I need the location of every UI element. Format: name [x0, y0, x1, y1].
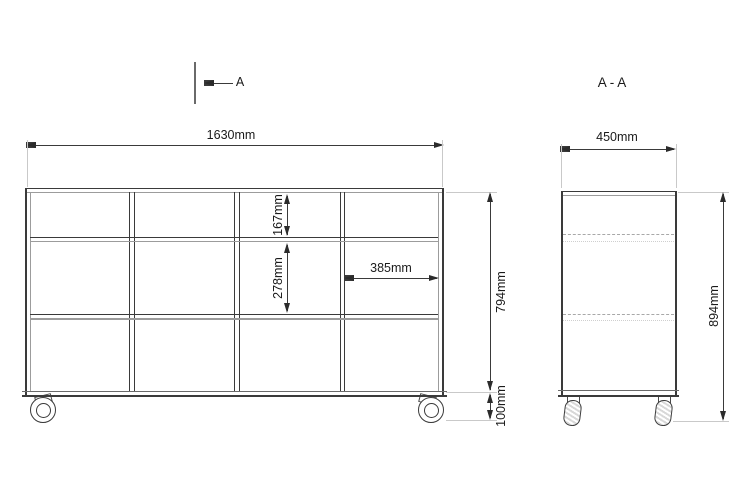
front-width-dimension-label: 1630mm: [191, 128, 271, 142]
front-middle-opening-label: 278mm: [271, 254, 285, 302]
caster-wheel-side: [653, 399, 673, 427]
caster-wheel-inner: [424, 403, 439, 418]
section-arrowhead-icon: [204, 80, 214, 86]
shelf-underside: [30, 318, 438, 320]
shelf-underside: [30, 241, 438, 243]
dim-arrowhead-icon: [487, 381, 493, 391]
technical-drawing-canvas: A A - A 1630mm: [0, 0, 750, 500]
section-arrow-line: [212, 83, 233, 84]
cabinet-bottom-inner: [22, 391, 447, 392]
side-depth-dimension-label: 450mm: [587, 130, 647, 144]
extension-line: [442, 140, 443, 187]
shelf: [30, 237, 438, 238]
divider: [239, 192, 240, 391]
cabinet-left-edge: [561, 191, 563, 397]
cabinet-top-edge: [561, 191, 677, 193]
dimension-line: [563, 149, 674, 150]
divider: [129, 192, 130, 391]
extension-line: [561, 144, 562, 188]
front-compartment-width-label: 385mm: [361, 261, 421, 275]
cabinet-top-inner: [562, 195, 675, 196]
caster-wheel-inner: [36, 403, 51, 418]
dimension-line: [723, 194, 724, 419]
dimension-line: [287, 245, 288, 311]
caster-wheel-side: [562, 399, 582, 427]
section-cut-line: [194, 62, 196, 104]
divider: [344, 192, 345, 391]
dim-arrowhead-icon: [429, 275, 439, 281]
dim-arrowhead-icon: [720, 411, 726, 421]
extension-line: [27, 140, 28, 187]
cabinet-right-edge: [675, 191, 677, 397]
cabinet-left-edge: [25, 188, 27, 397]
hidden-shelf-line: [563, 320, 674, 321]
dimension-line: [29, 145, 441, 146]
divider: [134, 192, 135, 391]
dim-arrowhead-icon: [284, 194, 290, 204]
cabinet-right-edge: [442, 188, 444, 397]
dim-arrowhead-icon: [487, 393, 493, 403]
dimension-line: [490, 194, 491, 390]
hidden-shelf-line: [563, 234, 674, 235]
divider: [340, 192, 341, 391]
dim-arrowhead-icon: [344, 275, 354, 281]
dim-arrowhead-icon: [666, 146, 676, 152]
cabinet-top-edge: [25, 188, 444, 190]
section-view-title: A - A: [581, 75, 643, 90]
hidden-shelf-line: [563, 241, 674, 242]
dim-arrowhead-icon: [487, 410, 493, 420]
front-caster-height-label: 100mm: [494, 382, 508, 430]
extension-line: [446, 420, 497, 421]
dim-arrowhead-icon: [720, 192, 726, 202]
cabinet-bottom-edge: [22, 395, 447, 397]
dim-arrowhead-icon: [284, 303, 290, 313]
front-body-height-label: 794mm: [494, 268, 508, 316]
cabinet-bottom-inner: [558, 390, 679, 391]
dimension-line: [346, 278, 437, 279]
shelf: [30, 314, 438, 315]
section-label: A: [232, 75, 248, 89]
dim-arrowhead-icon: [487, 192, 493, 202]
front-top-opening-label: 167mm: [271, 191, 285, 239]
divider: [234, 192, 235, 391]
cabinet-left-inner: [30, 192, 31, 391]
side-overall-height-label: 894mm: [707, 282, 721, 330]
hidden-shelf-line: [563, 314, 674, 315]
dim-arrowhead-icon: [284, 243, 290, 253]
cabinet-bottom-edge: [558, 395, 679, 397]
dim-arrowhead-icon: [284, 226, 290, 236]
extension-line: [676, 144, 677, 188]
cabinet-right-inner: [438, 192, 439, 391]
